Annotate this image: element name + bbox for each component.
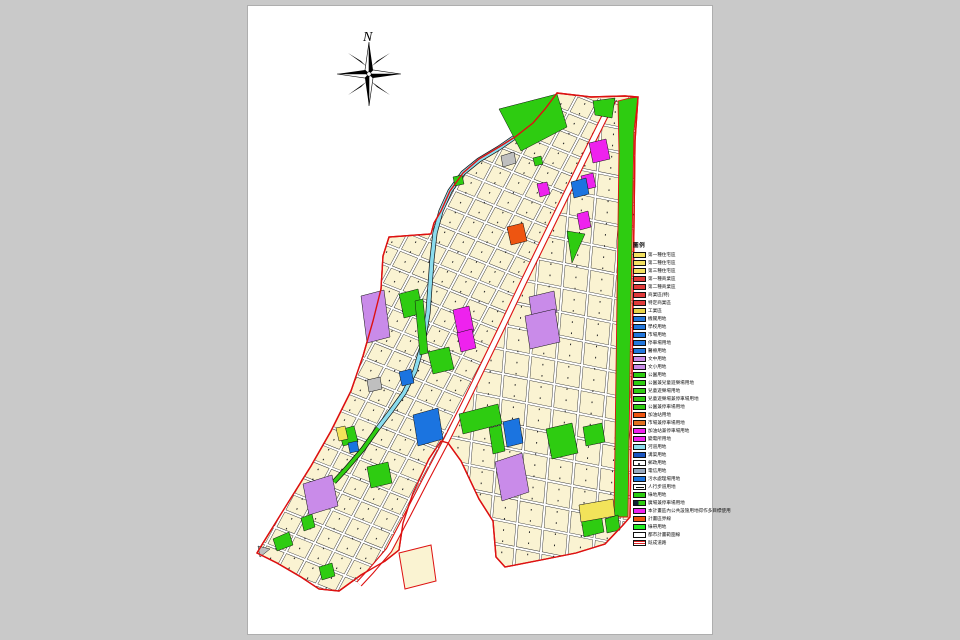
legend-row: 特定商業區 xyxy=(633,299,763,307)
map-sheet-page: N 圖例 第一種住宅區第二種住宅區第三種住宅區第一種商業區第二種商業區商業區(特… xyxy=(247,5,713,635)
legend-row: 兒童遊樂場用地 xyxy=(633,387,763,395)
legend-row: 人行步道用地 xyxy=(633,483,763,491)
legend-row: 學校用地 xyxy=(633,323,763,331)
legend-label: 工業區 xyxy=(648,307,662,315)
legend-label: 學校用地 xyxy=(648,323,666,331)
legend-row: 醫療用地 xyxy=(633,347,763,355)
legend-label: 特定商業區 xyxy=(648,299,671,307)
legend-swatch xyxy=(633,292,646,297)
legend-label: 綠地用地 xyxy=(648,491,666,499)
legend-row: 廣場兼停車場用地 xyxy=(633,499,763,507)
legend-swatch xyxy=(633,276,646,281)
legend-row: 商業區(特) xyxy=(633,291,763,299)
legend-swatch xyxy=(633,468,646,473)
legend-label: 本計畫區內公共設施用地得作多目標使用 xyxy=(648,507,731,515)
legend-label: 機關用地 xyxy=(648,315,666,323)
zoning-parcel xyxy=(428,347,454,374)
legend-label: 郵政用地 xyxy=(648,459,666,467)
legend-label: 第一種商業區 xyxy=(648,275,676,283)
zoning-parcel xyxy=(399,369,414,386)
legend-swatch xyxy=(633,452,646,457)
legend-row: 變電所用地 xyxy=(633,435,763,443)
legend-row: 第二種住宅區 xyxy=(633,259,763,267)
legend-row: 公園兼兒童遊樂場用地 xyxy=(633,379,763,387)
zoning-parcel xyxy=(593,98,615,118)
legend-row: 污水處理場用地 xyxy=(633,475,763,483)
legend-swatch xyxy=(633,484,646,489)
legend-label: 商業區(特) xyxy=(648,291,669,299)
legend-label: 第一種住宅區 xyxy=(648,251,676,259)
legend-label: 文中用地 xyxy=(648,355,666,363)
legend-row: 電信用地 xyxy=(633,467,763,475)
legend-label: 公園兼兒童遊樂場用地 xyxy=(648,379,694,387)
legend-swatch xyxy=(633,316,646,321)
legend-swatch xyxy=(633,420,646,425)
legend-swatch xyxy=(633,388,646,393)
legend-label: 公園用地 xyxy=(648,371,666,379)
legend-row: 綠帶用地 xyxy=(633,523,763,531)
south-block-parcel xyxy=(399,545,436,589)
legend-swatch xyxy=(633,260,646,265)
legend-row: 加油站兼停車場用地 xyxy=(633,427,763,435)
legend-swatch xyxy=(633,460,646,465)
legend-label: 文小用地 xyxy=(648,363,666,371)
legend-swatch xyxy=(633,540,646,545)
legend-label: 市場用地 xyxy=(648,331,666,339)
legend-swatch xyxy=(633,380,646,385)
legend-swatch xyxy=(633,436,646,441)
legend-row: 公園兼停車場用地 xyxy=(633,403,763,411)
legend-label: 溝渠用地 xyxy=(648,451,666,459)
legend-label: 醫療用地 xyxy=(648,347,666,355)
legend-row: 第二種商業區 xyxy=(633,283,763,291)
legend-swatch xyxy=(633,348,646,353)
legend-row: 本計畫區內公共設施用地得作多目標使用 xyxy=(633,507,763,515)
compass-north-label: N xyxy=(362,30,373,45)
zoning-parcel xyxy=(413,408,443,446)
legend-row: 郵政用地 xyxy=(633,459,763,467)
legend-row: 河道用地 xyxy=(633,443,763,451)
legend-row: 兒童遊樂場兼停車場用地 xyxy=(633,395,763,403)
legend-row: 工業區 xyxy=(633,307,763,315)
zoning-parcel xyxy=(367,377,382,392)
zoning-parcel xyxy=(348,441,359,453)
legend-swatch xyxy=(633,300,646,305)
zoning-parcel xyxy=(533,156,543,166)
legend-label: 兒童遊樂場兼停車場用地 xyxy=(648,395,699,403)
legend-row: 文小用地 xyxy=(633,363,763,371)
zoning-parcel xyxy=(589,139,610,163)
legend-swatch xyxy=(633,396,646,401)
legend-label: 電信用地 xyxy=(648,467,666,475)
legend-swatch xyxy=(633,404,646,409)
legend-label: 第二種商業區 xyxy=(648,283,676,291)
legend-swatch xyxy=(633,476,646,481)
legend-label: 第二種住宅區 xyxy=(648,259,676,267)
compass-center xyxy=(367,72,371,76)
legend-label: 加油站用地 xyxy=(648,411,671,419)
screenshot-root: { "compass": { "label": "N" }, "legend":… xyxy=(0,0,960,640)
legend-title: 圖例 xyxy=(633,242,763,250)
legend-row: 市場用地 xyxy=(633,331,763,339)
legend-row: 機關用地 xyxy=(633,315,763,323)
legend-label: 市場兼停車場用地 xyxy=(648,419,685,427)
legend-label: 公園兼停車場用地 xyxy=(648,403,685,411)
legend-label: 第三種住宅區 xyxy=(648,267,676,275)
legend-row: 停車場用地 xyxy=(633,339,763,347)
legend-label: 加油站兼停車場用地 xyxy=(648,427,689,435)
legend-swatch xyxy=(633,364,646,369)
legend-swatch xyxy=(633,532,646,537)
legend-label: 變電所用地 xyxy=(648,435,671,443)
legend-row: 加油站用地 xyxy=(633,411,763,419)
legend-label: 河道用地 xyxy=(648,443,666,451)
legend-row: 溝渠用地 xyxy=(633,451,763,459)
legend-row: 既成道路 xyxy=(633,539,763,547)
legend-swatch xyxy=(633,444,646,449)
legend-row: 計畫區界線 xyxy=(633,515,763,523)
legend-swatch xyxy=(633,324,646,329)
legend-swatch xyxy=(633,252,646,257)
legend-row: 綠地用地 xyxy=(633,491,763,499)
legend-row: 都市計畫範圍線 xyxy=(633,531,763,539)
legend-swatch xyxy=(633,524,646,529)
legend-swatch xyxy=(633,492,646,497)
legend-label: 人行步道用地 xyxy=(648,483,676,491)
legend-swatch xyxy=(633,412,646,417)
legend-row: 公園用地 xyxy=(633,371,763,379)
zoning-parcel xyxy=(546,423,578,459)
legend-rows: 第一種住宅區第二種住宅區第三種住宅區第一種商業區第二種商業區商業區(特)特定商業… xyxy=(633,251,763,547)
legend-swatch xyxy=(633,268,646,273)
legend-swatch xyxy=(633,356,646,361)
legend-swatch xyxy=(633,516,646,521)
legend-row: 市場兼停車場用地 xyxy=(633,419,763,427)
legend-swatch xyxy=(633,372,646,377)
legend-label: 停車場用地 xyxy=(648,339,671,347)
zoning-parcel xyxy=(367,462,392,488)
legend-label: 計畫區界線 xyxy=(648,515,671,523)
legend-row: 第一種商業區 xyxy=(633,275,763,283)
legend-swatch xyxy=(633,508,646,513)
legend-swatch xyxy=(633,340,646,345)
legend-row: 第一種住宅區 xyxy=(633,251,763,259)
legend-row: 第三種住宅區 xyxy=(633,267,763,275)
legend-label: 兒童遊樂場用地 xyxy=(648,387,680,395)
legend-swatch xyxy=(633,332,646,337)
legend-label: 綠帶用地 xyxy=(648,523,666,531)
legend-swatch xyxy=(633,308,646,313)
legend-label: 既成道路 xyxy=(648,539,666,547)
legend-swatch xyxy=(633,428,646,433)
legend-label: 污水處理場用地 xyxy=(648,475,680,483)
compass-rose: N xyxy=(337,30,401,106)
legend-swatch xyxy=(633,284,646,289)
zoning-parcel xyxy=(525,309,560,349)
legend-label: 都市計畫範圍線 xyxy=(648,531,680,539)
legend-label: 廣場兼停車場用地 xyxy=(648,499,685,507)
legend-swatch xyxy=(633,500,646,505)
zoning-parcel xyxy=(583,423,605,446)
map-legend: 圖例 第一種住宅區第二種住宅區第三種住宅區第一種商業區第二種商業區商業區(特)特… xyxy=(633,242,763,547)
legend-row: 文中用地 xyxy=(633,355,763,363)
